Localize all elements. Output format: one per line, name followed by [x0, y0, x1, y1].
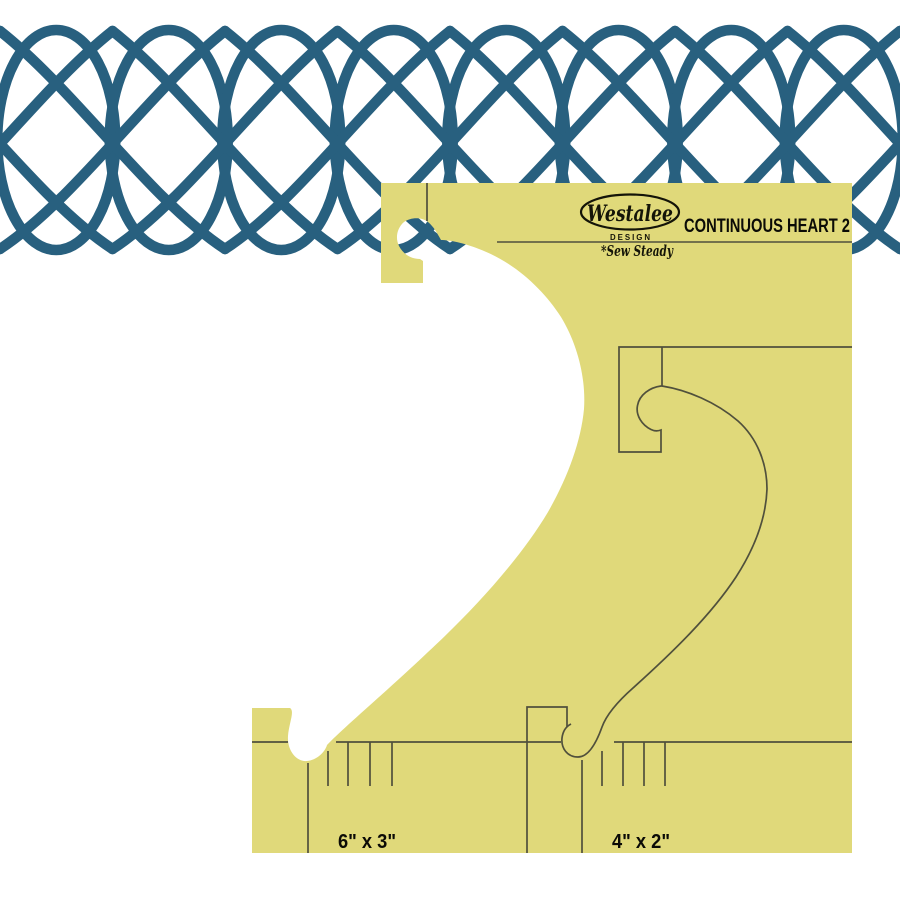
stitch-ellipse: [110, 30, 228, 250]
brand-sub: DESIGN: [610, 233, 652, 242]
size-label-large: 6" x 3": [338, 831, 396, 853]
product-image: Westalee DESIGN *Sew Steady CONTINUOUS H…: [0, 0, 900, 900]
scene: Westalee DESIGN *Sew Steady CONTINUOUS H…: [0, 0, 900, 900]
stitch-ellipse: [222, 30, 340, 250]
brand-name: Westalee: [587, 201, 673, 227]
stitch-ellipse: [0, 30, 115, 250]
product-title: CONTINUOUS HEART 2: [684, 216, 850, 237]
brand-tagline: *Sew Steady: [601, 242, 674, 260]
size-label-small: 4" x 2": [612, 831, 670, 853]
